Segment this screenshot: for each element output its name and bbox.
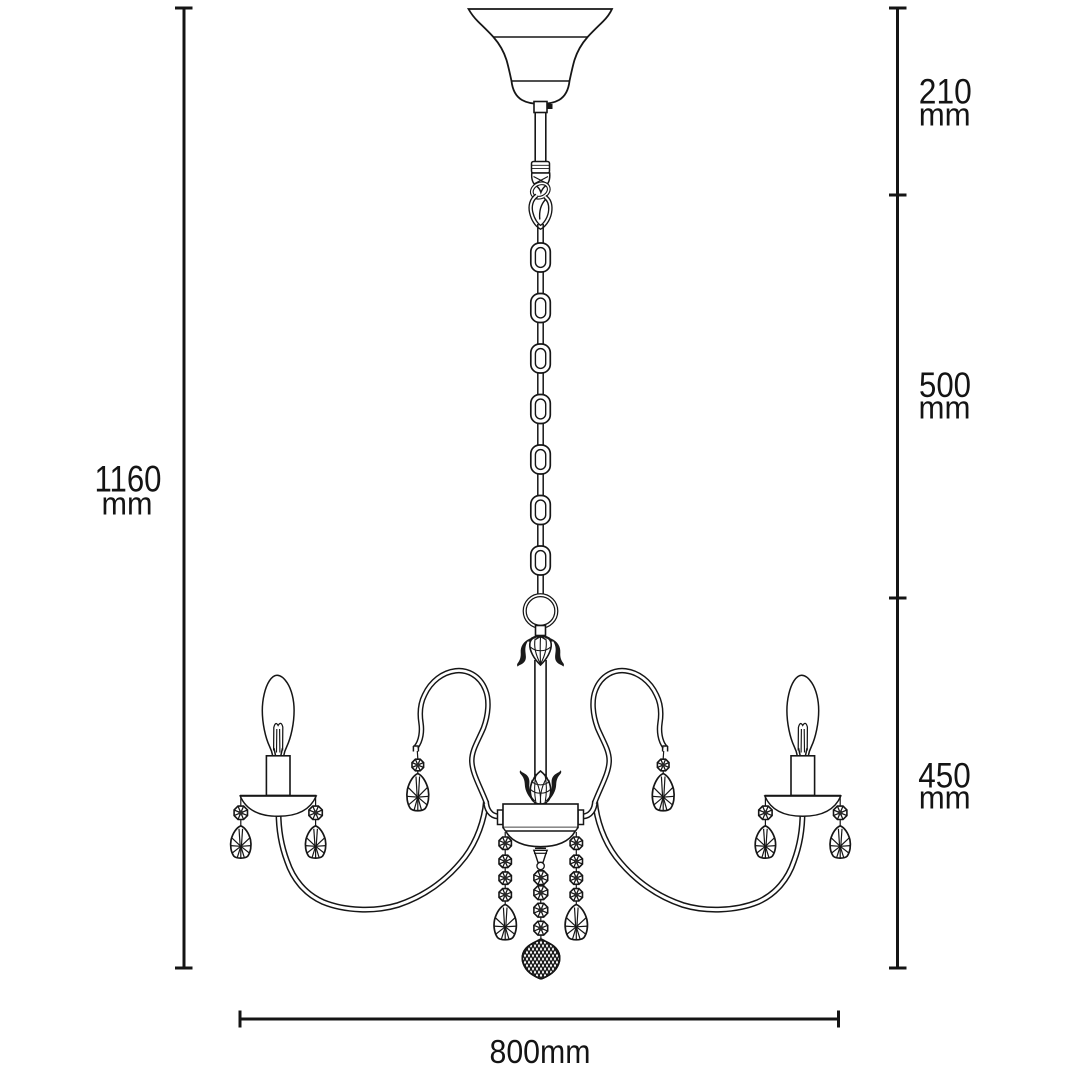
svg-text:mm: mm (919, 780, 971, 816)
svg-text:mm: mm (919, 97, 971, 133)
svg-text:mm: mm (919, 390, 971, 426)
svg-text:mm: mm (102, 486, 153, 522)
svg-text:800mm: 800mm (490, 1034, 591, 1070)
